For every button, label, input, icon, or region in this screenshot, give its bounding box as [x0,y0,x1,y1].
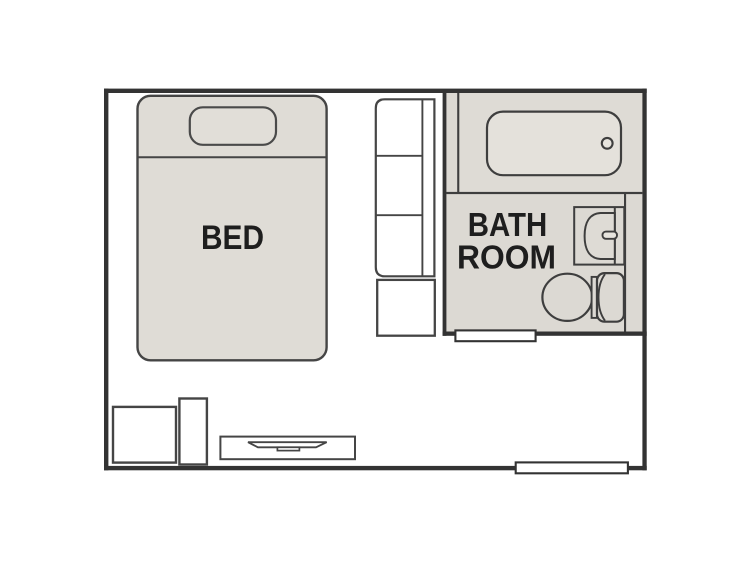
svg-text:BED: BED [201,219,264,257]
svg-text:ROOM: ROOM [457,240,556,277]
svg-text:BATH: BATH [468,207,548,244]
